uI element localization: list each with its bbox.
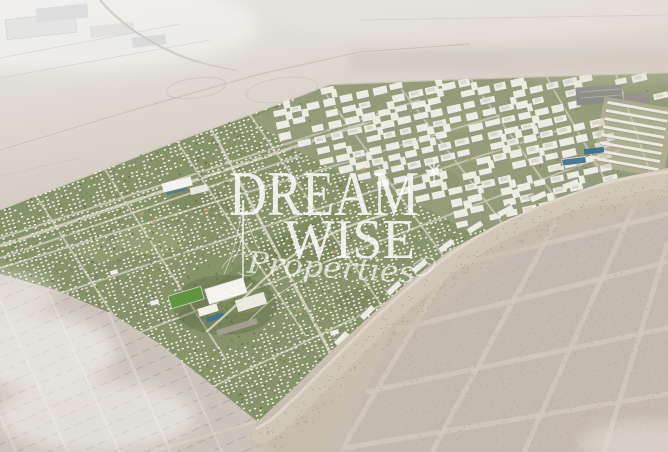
masterplan-render: DREAM WISE Properties xyxy=(0,0,668,452)
watermark: DREAM WISE Properties xyxy=(224,158,442,295)
